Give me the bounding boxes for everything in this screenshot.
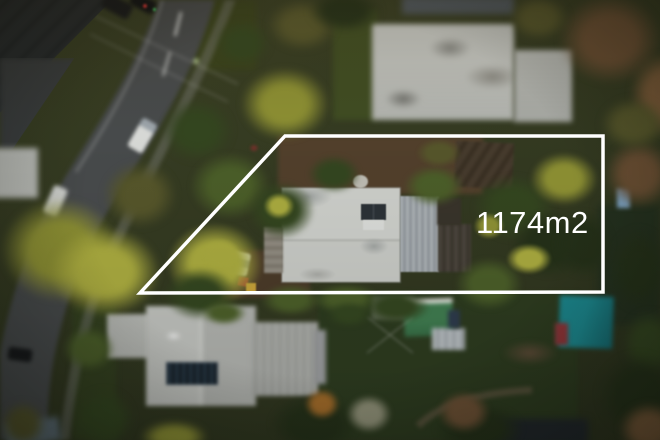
aerial-property-photo: 1174m2 (0, 0, 660, 440)
boundary-overlay: 1174m2 (0, 0, 660, 440)
area-label: 1174m2 (476, 205, 589, 240)
